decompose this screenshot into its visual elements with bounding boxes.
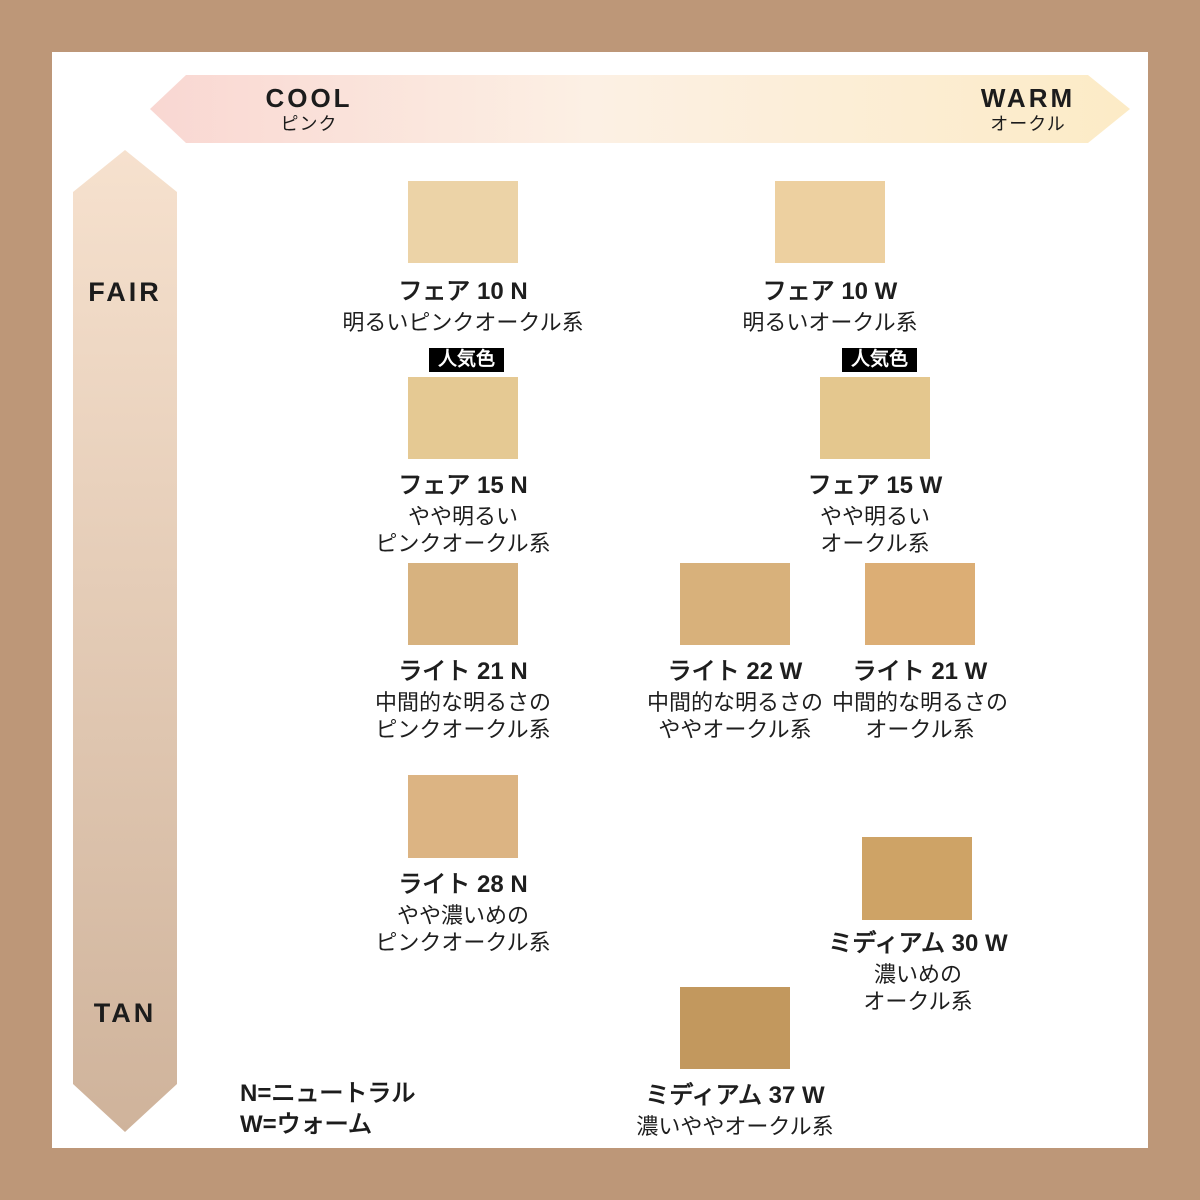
swatch-fair-10w [775, 181, 885, 263]
shade-name: ライト 21 N [313, 658, 613, 686]
shade-label-fair-15n: フェア 15 N やや明るい ピンクオークル系 [313, 472, 613, 557]
swatch-fair-15w [820, 377, 930, 459]
shade-desc: オークル系 [768, 988, 1068, 1015]
swatch-light-21n [408, 563, 518, 645]
shade-label-medium-37w: ミディアム 37 W 濃いややオークル系 [585, 1082, 885, 1140]
legend-warm: W=ウォーム [240, 1109, 415, 1140]
shade-label-medium-30w: ミディアム 30 W 濃いめの オークル系 [768, 930, 1068, 1015]
popular-badge-fair15n: 人気色 [429, 348, 504, 372]
warm-label: WARM [878, 84, 1178, 112]
shade-desc: ピンクオークル系 [313, 716, 613, 743]
shade-label-light-21n: ライト 21 N 中間的な明るさの ピンクオークル系 [313, 658, 613, 743]
popular-badge-fair15w: 人気色 [842, 348, 917, 372]
shade-name: フェア 10 W [680, 278, 980, 306]
shade-desc: ピンクオークル系 [313, 929, 613, 956]
warm-axis-label-block: WARM オークル [878, 84, 1178, 135]
warm-sub-label: オークル [878, 113, 1178, 135]
swatch-light-22w [680, 563, 790, 645]
swatch-fair-10n [408, 181, 518, 263]
shade-desc: オークル系 [770, 716, 1070, 743]
shade-desc: 中間的な明るさの [313, 689, 613, 716]
shade-label-fair-10w: フェア 10 W 明るいオークル系 [680, 278, 980, 336]
shade-label-fair-10n: フェア 10 N 明るいピンクオークル系 [313, 278, 613, 336]
swatch-light-28n [408, 775, 518, 858]
shade-desc: 明るいオークル系 [680, 309, 980, 336]
legend-neutral: N=ニュートラル [240, 1078, 415, 1109]
cool-axis-label-block: COOL ピンク [159, 84, 459, 135]
shade-label-fair-15w: フェア 15 W やや明るい オークル系 [725, 472, 1025, 557]
shade-desc: やや濃いめの [313, 902, 613, 929]
shade-desc: オークル系 [725, 530, 1025, 557]
shade-name: ライト 21 W [770, 658, 1070, 686]
shade-name: ライト 28 N [313, 871, 613, 899]
shade-desc: 明るいピンクオークル系 [313, 309, 613, 336]
shade-name: ミディアム 30 W [768, 930, 1068, 958]
shade-key-legend: N=ニュートラル W=ウォーム [240, 1078, 415, 1140]
shade-desc: 濃いややオークル系 [585, 1113, 885, 1140]
shade-desc: やや明るい [313, 503, 613, 530]
tan-label: TAN [73, 998, 177, 1029]
shade-chart: COOL ピンク WARM オークル FAIR TAN 人気色 人気色 フェア … [0, 0, 1200, 1200]
shade-name: フェア 15 W [725, 472, 1025, 500]
shade-name: ミディアム 37 W [585, 1082, 885, 1110]
shade-desc: 中間的な明るさの [770, 689, 1070, 716]
shade-desc: ピンクオークル系 [313, 530, 613, 557]
swatch-light-21w [865, 563, 975, 645]
cool-label: COOL [159, 84, 459, 112]
shade-name: フェア 15 N [313, 472, 613, 500]
fair-label: FAIR [73, 277, 177, 308]
swatch-fair-15n [408, 377, 518, 459]
shade-name: フェア 10 N [313, 278, 613, 306]
shade-label-light-21w: ライト 21 W 中間的な明るさの オークル系 [770, 658, 1070, 743]
shade-desc: 濃いめの [768, 961, 1068, 988]
shade-desc: やや明るい [725, 503, 1025, 530]
swatch-medium-30w [862, 837, 972, 920]
cool-sub-label: ピンク [159, 113, 459, 135]
shade-label-light-28n: ライト 28 N やや濃いめの ピンクオークル系 [313, 871, 613, 956]
